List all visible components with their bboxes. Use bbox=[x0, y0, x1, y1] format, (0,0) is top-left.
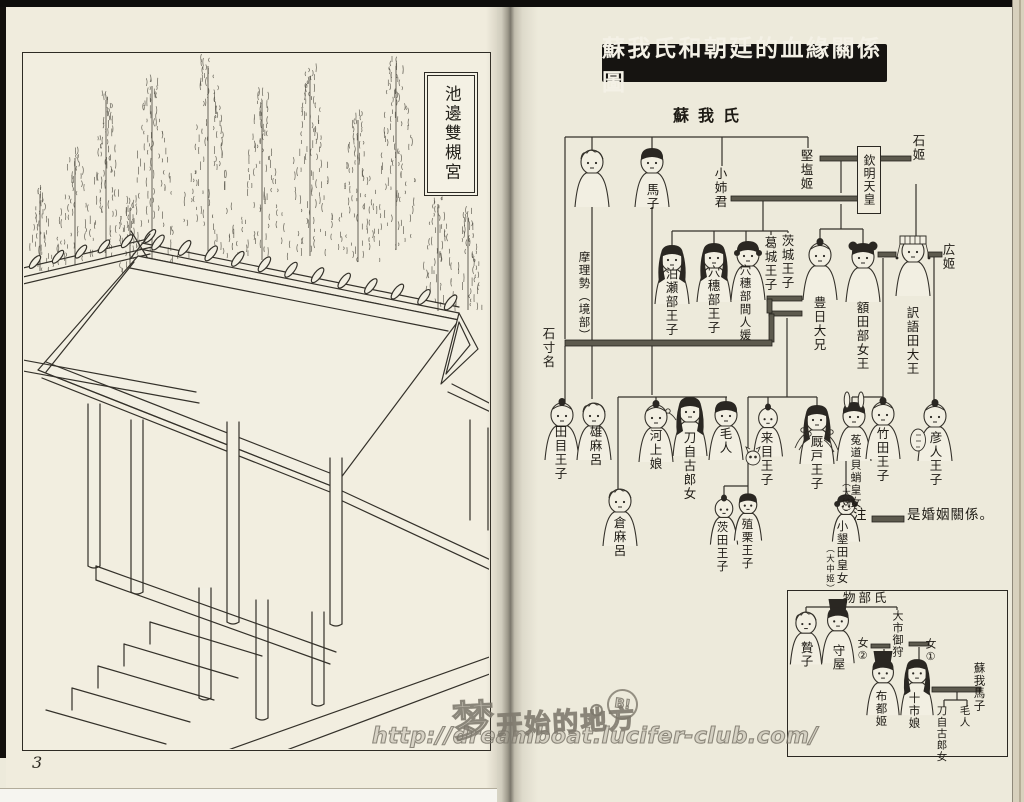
speech-bubble bbox=[911, 429, 926, 451]
cat-doodle bbox=[746, 447, 760, 465]
page-number: 3 bbox=[32, 753, 42, 772]
page-stack-line bbox=[1019, 0, 1021, 802]
caption-box: 池邊雙槻宮 bbox=[424, 72, 478, 196]
scan-bottom-strip bbox=[0, 788, 497, 802]
book-scan: 池邊雙槻宮 3 蘇我氏和朝廷的血緣關係圖 欽明天皇 石寸名摩理勢（境部）馬子小姉… bbox=[0, 0, 1024, 802]
scan-left-edge bbox=[0, 7, 6, 758]
page-stack-edge bbox=[1012, 0, 1024, 802]
scan-top-edge bbox=[0, 0, 1017, 7]
caption-inner-frame: 池邊雙槻宮 bbox=[427, 75, 475, 193]
palace-drawing bbox=[23, 228, 495, 760]
caption-text: 池邊雙槻宮 bbox=[443, 85, 460, 183]
artwork-layer bbox=[0, 0, 1024, 802]
